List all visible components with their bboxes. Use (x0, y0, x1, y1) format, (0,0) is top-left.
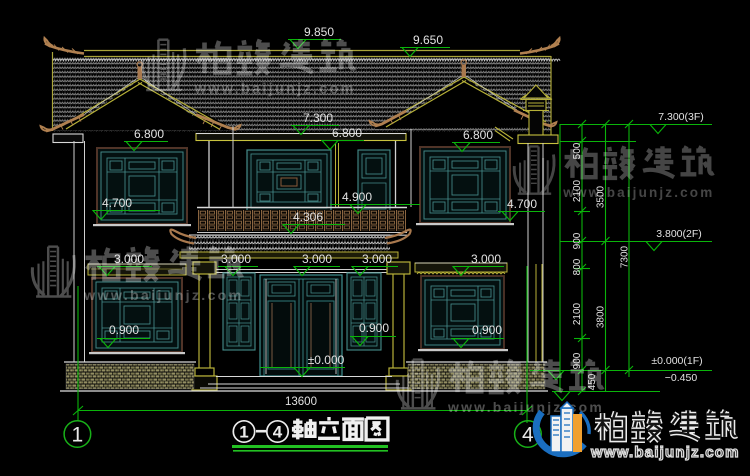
svg-text:3.000: 3.000 (302, 252, 332, 266)
svg-text:3800: 3800 (596, 305, 607, 328)
svg-text:0.900: 0.900 (109, 323, 139, 337)
svg-text:900: 900 (572, 232, 583, 249)
svg-text:9.850: 9.850 (304, 25, 334, 39)
svg-text:−0.450: −0.450 (665, 372, 698, 384)
svg-text:0.900: 0.900 (359, 321, 389, 335)
svg-text:7.300: 7.300 (303, 111, 333, 125)
svg-text:1: 1 (72, 424, 84, 447)
svg-text:3.000: 3.000 (471, 252, 501, 266)
svg-text:9.650: 9.650 (413, 33, 443, 47)
svg-text:4.900: 4.900 (342, 190, 372, 204)
svg-text:7.300(3F): 7.300(3F) (658, 111, 704, 123)
svg-text:7300: 7300 (620, 245, 631, 268)
svg-text:±0.000: ±0.000 (308, 353, 345, 367)
svg-text:6.800: 6.800 (134, 127, 164, 141)
svg-text:3.800(2F): 3.800(2F) (656, 228, 702, 240)
svg-text:1: 1 (239, 423, 248, 442)
svg-text:4: 4 (273, 423, 283, 442)
svg-text:13600: 13600 (285, 396, 317, 408)
svg-text:±0.000(1F): ±0.000(1F) (651, 355, 702, 367)
svg-text:2100: 2100 (572, 302, 583, 325)
svg-text:800: 800 (572, 258, 583, 275)
svg-text:6.800: 6.800 (463, 128, 493, 142)
svg-text:6.800: 6.800 (332, 126, 362, 140)
svg-text:4.700: 4.700 (102, 196, 132, 210)
svg-text:4: 4 (522, 424, 534, 447)
svg-text:3.000: 3.000 (362, 252, 392, 266)
svg-text:4.700: 4.700 (507, 197, 537, 211)
svg-text:0.900: 0.900 (472, 323, 502, 337)
svg-text:4.306: 4.306 (293, 210, 323, 224)
svg-text:www.baijunjz.com: www.baijunjz.com (590, 444, 740, 461)
